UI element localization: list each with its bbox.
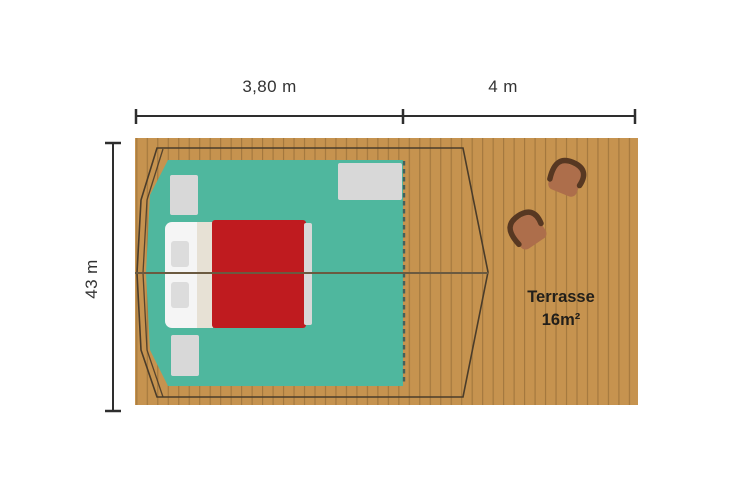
floor-plan: 3,80 m 4 m 43 m Terrasse 16m² xyxy=(0,0,751,500)
terrace-area: 16m² xyxy=(496,309,626,332)
floor-plan-drawing xyxy=(0,0,751,500)
bed-sheet-fold xyxy=(197,222,213,328)
dim-label-depth: 43 m xyxy=(82,239,102,319)
rug-top-right xyxy=(338,163,402,200)
terrace-label: Terrasse 16m² xyxy=(496,286,626,332)
dimension-line-left xyxy=(105,143,121,411)
rug-top-left xyxy=(170,175,198,215)
bed-pillow-top xyxy=(171,241,189,267)
terrace-name: Terrasse xyxy=(496,286,626,309)
dimension-line-top xyxy=(136,109,635,124)
bed-pillow-bottom xyxy=(171,282,189,308)
rug-bottom-left xyxy=(171,335,199,376)
dim-label-tent-width: 3,80 m xyxy=(136,77,403,97)
dim-label-terrace-width: 4 m xyxy=(403,77,603,97)
